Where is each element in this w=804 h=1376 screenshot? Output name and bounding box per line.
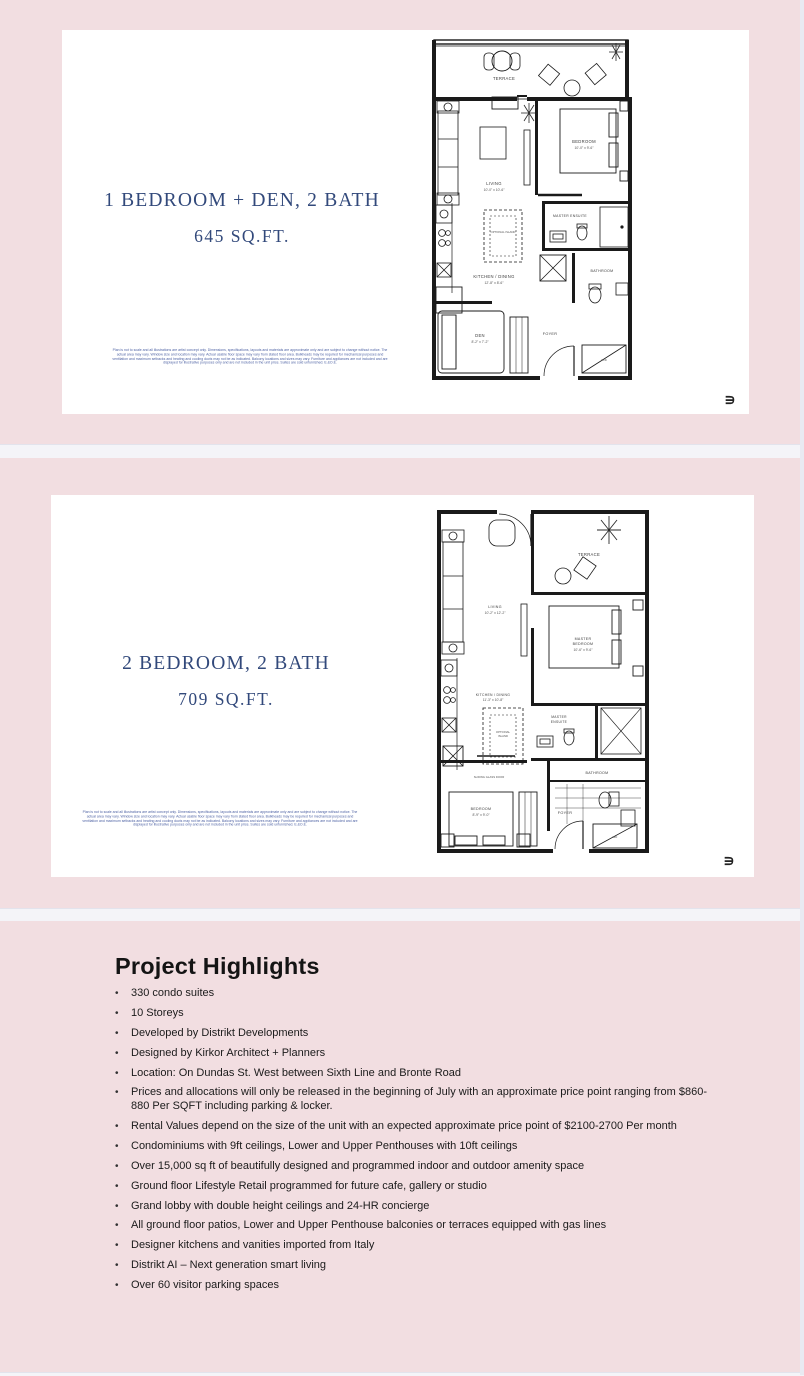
highlight-text: 10 Storeys [131,1007,707,1021]
highlight-text: Grand lobby with double height ceilings … [131,1200,707,1214]
bullet-icon: • [115,1027,131,1041]
kitchen-area [436,203,522,313]
highlight-item: • Condominiums with 9ft ceilings, Lower … [115,1140,707,1154]
floorplan-2bed: TERRACE LIVING 10'-2" x 12'-2" [437,508,649,856]
plant-icon [597,516,621,544]
highlight-item: • Designer kitchens and vanities importe… [115,1239,707,1253]
living-dims: 10'-2" x 12'-2" [485,611,507,615]
bullet-icon: • [115,1160,131,1174]
den-dims: 8'-2" x 7'-2" [471,340,489,344]
bullet-icon: • [115,1007,131,1021]
project-highlights-title: Project Highlights [115,953,320,980]
ensuite-label: MASTER ENSUITE [553,214,587,218]
foyer-area [544,345,626,376]
island-label-2: ISLAND [498,734,508,738]
highlight-item: • 330 condo suites [115,987,707,1001]
floorplan-1bed-den: TERRACE [432,35,658,385]
document-viewer: 1 BEDROOM + DEN, 2 BATH 645 SQ.FT. [0,0,804,1375]
highlight-text: Location: On Dundas St. West between Six… [131,1067,707,1081]
terrace-label: TERRACE [493,76,515,81]
bullet-icon: • [115,1067,131,1081]
floorplan-1-drawing: TERRACE [432,35,658,385]
bullet-icon: • [115,1086,131,1113]
bedroom2-area [437,756,537,847]
highlight-text: Over 60 visitor parking spaces [131,1279,707,1293]
master-bedroom-label-1: MASTER [575,637,592,641]
slide-2-bedroom: 2 BEDROOM, 2 BATH 709 SQ.FT. [0,458,800,908]
slide-2-sqft: 709 SQ.FT. [81,689,371,710]
highlight-item: • All ground floor patios, Lower and Upp… [115,1219,707,1233]
plant-icon [521,103,537,123]
ensuite-label-1: MASTER [551,715,567,719]
master-bedroom-label-2: BEDROOM [573,642,594,646]
wd-label: WD [613,835,618,839]
bullet-icon: • [115,1219,131,1233]
island-label: OPTIONAL ISLAND [491,230,516,234]
unit-walls [437,510,649,853]
ensuite-label-2: ENSUITE [551,720,568,724]
terrace-chairs [538,63,606,96]
highlight-text: Over 15,000 sq ft of beautifully designe… [131,1160,707,1174]
highlight-text: Developed by Distrikt Developments [131,1027,707,1041]
highlight-item: • Location: On Dundas St. West between S… [115,1067,707,1081]
living-label: LIVING [488,605,502,609]
bullet-icon: • [115,1047,131,1061]
slide-1-title: 1 BEDROOM + DEN, 2 BATH [82,190,402,212]
sliding-door-label: SLIDING GLASS DOOR [474,775,504,779]
living-label: LIVING [486,181,502,186]
foyer-label: FOYER [558,811,573,815]
unit-walls [432,95,632,380]
highlight-item: • 10 Storeys [115,1007,707,1021]
bullet-icon: • [115,1239,131,1253]
slide-2-title: 2 BEDROOM, 2 BATH [81,653,371,675]
highlight-item: • Developed by Distrikt Developments [115,1027,707,1041]
kitchen-dims: 12'-8" x 8'-6" [485,281,505,285]
foyer-label: FOYER [543,332,558,336]
highlight-item: • Distrikt AI – Next generation smart li… [115,1259,707,1273]
bullet-icon: • [115,1259,131,1273]
highlight-text: Designer kitchens and vanities imported … [131,1239,707,1253]
bullet-icon: • [115,1180,131,1194]
project-highlights-list: • 330 condo suites • 10 Storeys • Develo… [115,987,707,1299]
kitchen-label: KITCHEN / DINING [476,693,510,697]
highlight-item: • Designed by Kirkor Architect + Planner… [115,1047,707,1061]
ensuite-area [542,201,632,251]
highlight-text: 330 condo suites [131,987,707,1001]
highlight-item: • Over 15,000 sq ft of beautifully desig… [115,1160,707,1174]
slide-2-card: 2 BEDROOM, 2 BATH 709 SQ.FT. [51,495,754,877]
page-separator [0,1372,804,1376]
slide-1-title-block: 1 BEDROOM + DEN, 2 BATH 645 SQ.FT. [82,190,402,247]
bedroom2-dims: 8'-9" x 9'-0" [472,813,490,817]
highlight-text: All ground floor patios, Lower and Upper… [131,1219,707,1233]
bedroom-dims: 10'-0" x 9'-6" [575,146,595,150]
slide-2-disclaimer: Plan is not to scale and all illustratio… [80,810,360,844]
scrollbar-track[interactable] [800,0,804,1375]
highlight-text: Rental Values depend on the size of the … [131,1120,707,1134]
highlight-item: • Grand lobby with double height ceiling… [115,1200,707,1214]
bathroom-area [540,253,628,303]
den-label: DEN [475,333,485,338]
kitchen-dims: 11'-3" x 10'-8" [483,698,504,702]
slide-1-card: 1 BEDROOM + DEN, 2 BATH 645 SQ.FT. [62,30,749,414]
floorplan-2-drawing: TERRACE LIVING 10'-2" x 12'-2" [437,508,649,856]
bathroom-label: BATHROOM [586,771,609,775]
foyer-area [555,821,637,849]
highlight-text: Designed by Kirkor Architect + Planners [131,1047,707,1061]
slide-1-bedroom-den: 1 BEDROOM + DEN, 2 BATH 645 SQ.FT. [0,0,800,444]
ensuite-area [531,703,645,761]
highlight-item: • Ground floor Lifestyle Retail programm… [115,1180,707,1194]
highlight-item: • Prices and allocations will only be re… [115,1086,707,1113]
living-area [442,510,534,656]
slide-2-title-block: 2 BEDROOM, 2 BATH 709 SQ.FT. [81,653,371,710]
bullet-icon: • [115,1200,131,1214]
distrikt-logo-icon: ∍ [724,392,736,408]
bullet-icon: • [115,1120,131,1134]
terrace-area [432,40,629,100]
highlight-text: Distrikt AI – Next generation smart livi… [131,1259,707,1273]
kitchen-area [441,658,523,770]
highlight-text: Ground floor Lifestyle Retail programmed… [131,1180,707,1194]
bullet-icon: • [115,987,131,1001]
wd-label: W/D [601,358,606,362]
master-bedroom-dims: 10'-6" x 9'-6" [574,648,594,652]
bedroom2-label: BEDROOM [471,807,492,811]
slide-1-sqft: 645 SQ.FT. [82,226,402,247]
highlight-item: • Over 60 visitor parking spaces [115,1279,707,1293]
slide-1-disclaimer: Plan is not to scale and all illustratio… [110,348,390,382]
bedroom-label: BEDROOM [572,139,596,144]
slide-3-project-highlights: Project Highlights • 330 condo suites • … [0,921,800,1372]
distrikt-logo-icon: ∍ [723,853,735,869]
bathroom-label: BATHROOM [591,269,614,273]
terrace-label: TERRACE [578,552,600,557]
highlight-item: • Rental Values depend on the size of th… [115,1120,707,1134]
highlight-text: Condominiums with 9ft ceilings, Lower an… [131,1140,707,1154]
living-dims: 10'-0" x 10'-6" [484,188,506,192]
kitchen-label: KITCHEN / DINING [473,274,514,279]
bullet-icon: • [115,1279,131,1293]
highlight-text: Prices and allocations will only be rele… [131,1086,707,1113]
bullet-icon: • [115,1140,131,1154]
